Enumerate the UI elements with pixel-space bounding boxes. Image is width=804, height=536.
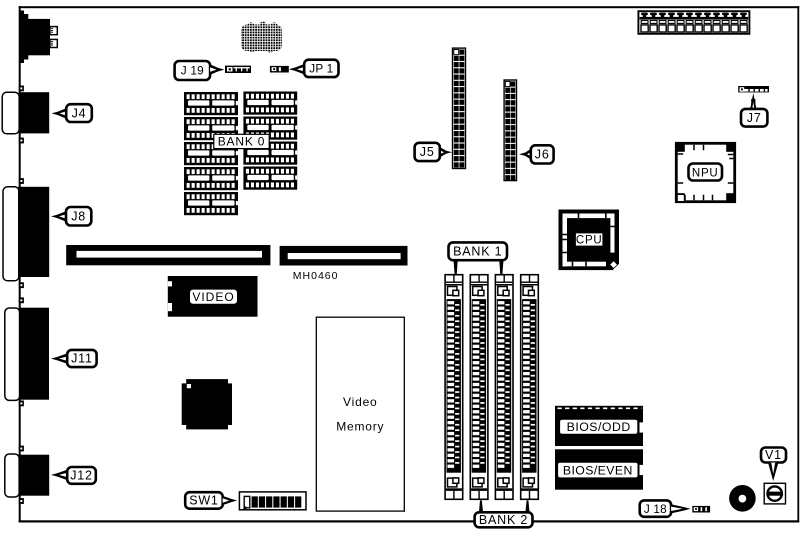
- svg-text:BANK 2: BANK 2: [479, 513, 528, 527]
- svg-text:J11: J11: [71, 352, 93, 366]
- svg-text:BIOS/ODD: BIOS/ODD: [567, 420, 631, 434]
- svg-text:J 19: J 19: [181, 64, 204, 78]
- svg-text:J7: J7: [747, 111, 762, 125]
- svg-text:CPU: CPU: [576, 235, 603, 247]
- svg-text:JP 1: JP 1: [309, 62, 333, 76]
- svg-text:Memory: Memory: [336, 420, 384, 434]
- svg-text:J 18: J 18: [644, 502, 667, 516]
- svg-text:J8: J8: [71, 209, 86, 223]
- svg-text:V1: V1: [765, 448, 782, 462]
- svg-text:J5: J5: [420, 145, 435, 159]
- svg-text:J6: J6: [535, 148, 550, 162]
- svg-text:SW1: SW1: [189, 494, 219, 508]
- svg-text:J4: J4: [72, 106, 87, 120]
- svg-text:J12: J12: [70, 469, 93, 483]
- svg-text:Video: Video: [343, 395, 377, 409]
- svg-text:MH0460: MH0460: [293, 270, 339, 282]
- svg-text:VIDEO: VIDEO: [192, 290, 234, 304]
- svg-text:BANK 0: BANK 0: [218, 135, 266, 149]
- svg-text:NPU: NPU: [692, 167, 719, 179]
- svg-text:BIOS/EVEN: BIOS/EVEN: [563, 463, 633, 477]
- svg-text:BANK 1: BANK 1: [453, 245, 502, 259]
